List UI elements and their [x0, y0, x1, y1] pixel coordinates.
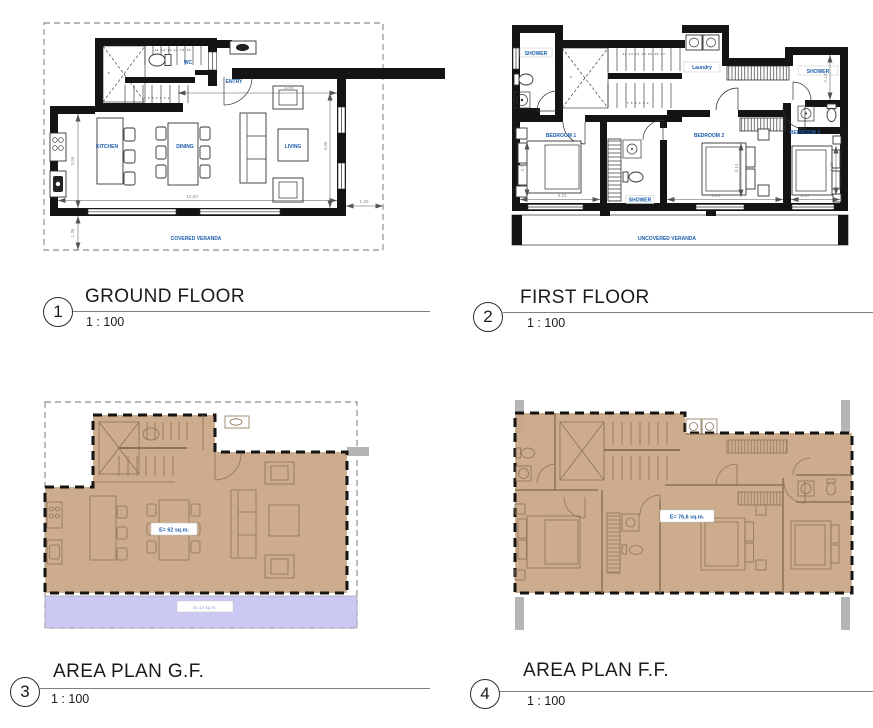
view-number-badge: 1: [43, 297, 73, 327]
view-title-line: [40, 688, 430, 689]
stair-numbers-lower: 7 6 5 4 3 2 1: [144, 96, 170, 100]
svg-text:1.20: 1.20: [360, 199, 369, 204]
room-label-wc: WC: [184, 60, 193, 66]
svg-text:3.70: 3.70: [520, 162, 525, 171]
drawing-sheet: 11 12 13 14 15 16 7 6 5 4 3 2 1 9: [0, 0, 873, 728]
veranda-area-label: E=14 sq.m.: [193, 605, 216, 610]
room-label-bedroom3: BEDROOM 3: [790, 130, 821, 136]
view-scale: 1 : 100: [51, 692, 89, 706]
stair-numbers-upper: 11 12 13 14 15 16: [155, 48, 192, 52]
room-label-covered-veranda: COVERED VERANDA: [171, 236, 222, 242]
svg-text:4.80: 4.80: [323, 141, 328, 150]
svg-text:3.55: 3.55: [70, 156, 75, 165]
door-arc: [793, 82, 811, 100]
room-label-bedroom1: BEDROOM 1: [546, 133, 577, 139]
view-number-badge: 3: [10, 677, 40, 707]
view-title-ground-floor: GROUND FLOOR: [85, 286, 245, 308]
view-number: 2: [483, 307, 492, 327]
view-scale: 1 : 100: [527, 694, 565, 708]
stair-numbers-lower: 7 6 5 4 3 2: [627, 101, 649, 105]
toilet-icon: [514, 74, 533, 85]
kitchen-island: [97, 118, 135, 185]
toilet-icon: [827, 104, 836, 122]
viewport-area-plan-ff[interactable]: E= 76,6 sq.m.: [500, 390, 873, 642]
stairs: 11 12 13 14 15 16 17 7 6 5 4 3 2 9: [562, 48, 682, 108]
dryer-icon: [703, 35, 719, 50]
svg-text:3.10: 3.10: [558, 193, 567, 198]
view-title-line: [503, 312, 873, 313]
toilet-icon: [623, 172, 643, 182]
armchair: [273, 178, 303, 202]
view-number: 1: [53, 302, 62, 322]
wardrobe: [727, 66, 789, 131]
viewport-first-floor-plan[interactable]: 11 12 13 14 15 16 17 7 6 5 4 3 2 9: [500, 15, 873, 270]
room-label-uncovered-veranda: UNCOVERED VERANDA: [638, 236, 696, 242]
door-arc: [716, 88, 738, 110]
sink-icon: [798, 106, 814, 121]
svg-text:5.95: 5.95: [285, 85, 294, 90]
room-label-laundry: Laundry: [692, 65, 712, 71]
column-stub: [347, 447, 369, 456]
viewport-ground-floor-plan[interactable]: 11 12 13 14 15 16 7 6 5 4 3 2 1 9: [40, 15, 445, 270]
svg-text:3.20: 3.20: [712, 193, 721, 198]
svg-text:10.60: 10.60: [186, 194, 198, 199]
bed: [702, 129, 769, 196]
svg-text:3.10: 3.10: [801, 193, 810, 198]
area-label-ff: E= 76,6 sq.m.: [670, 515, 705, 521]
kitchen-sink-icon: [50, 171, 66, 197]
view-number: 4: [480, 684, 489, 704]
room-label-bedroom2: BEDROOM 2: [694, 133, 725, 139]
stair-numbers-upper: 11 12 13 14 15 16 17: [622, 52, 665, 56]
svg-text:3.20: 3.20: [829, 162, 834, 171]
view-number-badge: 2: [473, 302, 503, 332]
svg-text:1.35: 1.35: [70, 228, 75, 237]
room-label-kitchen: KITCHEN: [96, 144, 119, 150]
viewport-area-plan-gf[interactable]: E= 62 sq.m. E=14 sq.m.: [35, 390, 450, 645]
room-label-shower-mid: SHOWER: [629, 198, 652, 204]
view-title-first-floor: FIRST FLOOR: [520, 287, 650, 309]
svg-text:3.10: 3.10: [734, 163, 739, 172]
svg-text:2.10: 2.10: [823, 73, 828, 82]
view-title-area-plan-gf: AREA PLAN G.F.: [53, 661, 204, 683]
view-scale: 1 : 100: [86, 315, 124, 329]
view-title-line: [500, 691, 873, 692]
stairs: 11 12 13 14 15 16 7 6 5 4 3 2 1 9: [103, 46, 201, 103]
toilet-icon: [149, 54, 171, 66]
view-number: 3: [20, 682, 29, 702]
cooktop-icon: [50, 133, 66, 161]
dining-table: [156, 123, 210, 185]
stair-number-mid: 9: [108, 71, 110, 75]
washer-icon: [686, 35, 702, 50]
linen-closet: [608, 139, 621, 201]
view-title-line: [73, 311, 430, 312]
room-label-dining: DINING: [176, 144, 194, 150]
room-label-living: LIVING: [285, 144, 302, 150]
room-label-shower-left: SHOWER: [525, 51, 548, 57]
sink-icon: [623, 140, 641, 158]
view-number-badge: 4: [470, 679, 500, 709]
sofa: [240, 113, 266, 183]
sink-icon: [230, 41, 256, 54]
view-title-area-plan-ff: AREA PLAN F.F.: [523, 660, 669, 682]
view-scale: 1 : 100: [527, 316, 565, 330]
room-label-entry: ENTRY: [226, 79, 243, 85]
area-label-gf: E= 62 sq.m.: [159, 528, 189, 534]
stair-number-mid: 9: [570, 75, 572, 79]
